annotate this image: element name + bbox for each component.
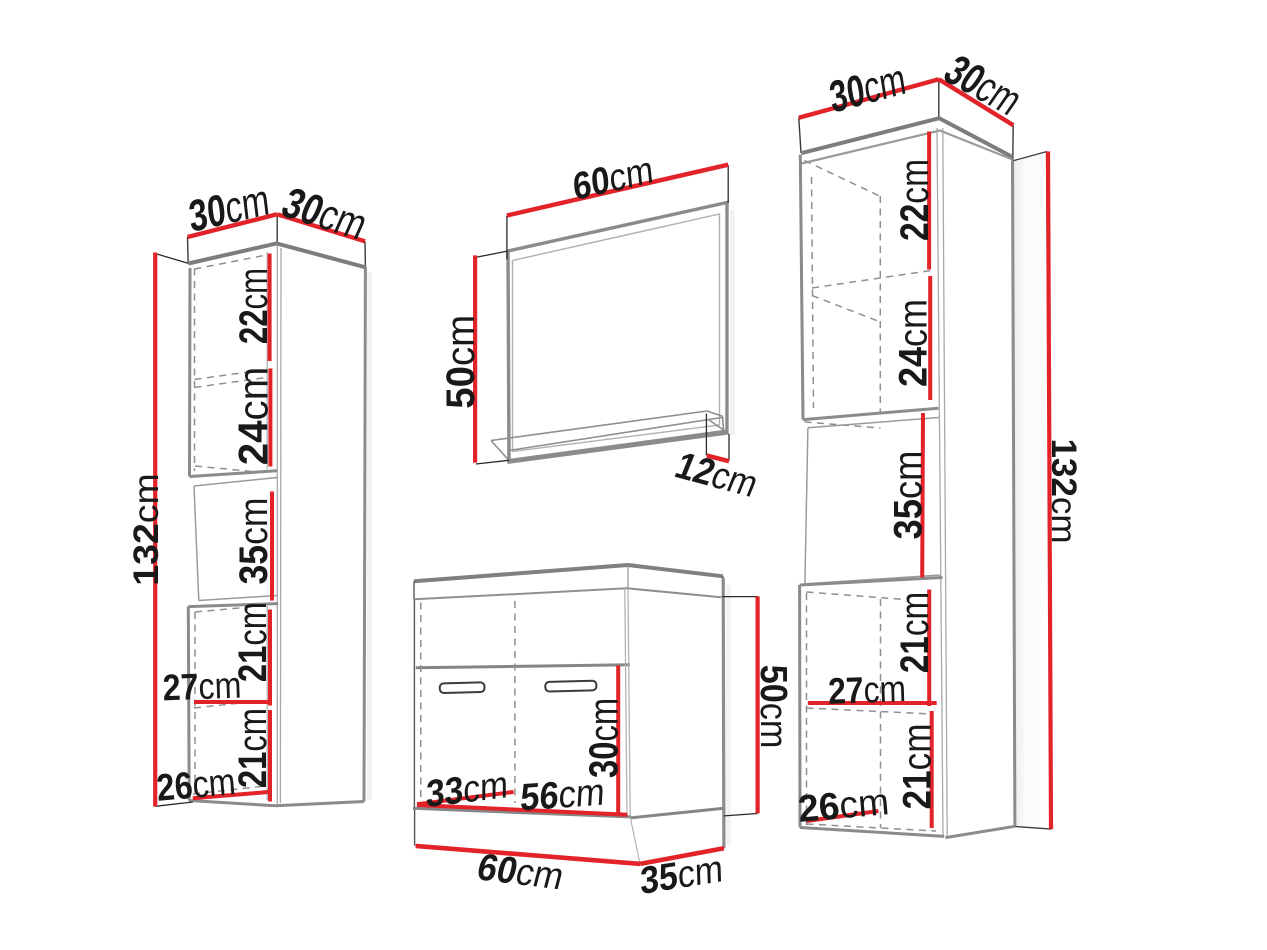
svg-text:24cm: 24cm bbox=[892, 299, 936, 387]
svg-text:21cm: 21cm bbox=[892, 592, 937, 673]
svg-text:132cm: 132cm bbox=[1044, 438, 1083, 543]
svg-text:22cm: 22cm bbox=[892, 159, 936, 241]
svg-text:132cm: 132cm bbox=[126, 473, 166, 585]
svg-text:26cm: 26cm bbox=[796, 780, 890, 830]
svg-text:24cm: 24cm bbox=[230, 367, 277, 466]
svg-text:26cm: 26cm bbox=[155, 761, 237, 810]
svg-text:21cm: 21cm bbox=[230, 708, 275, 788]
svg-text:30cm: 30cm bbox=[580, 698, 626, 778]
svg-text:50cm: 50cm bbox=[753, 665, 796, 749]
svg-text:35cm: 35cm bbox=[886, 451, 931, 540]
svg-text:27cm: 27cm bbox=[162, 666, 242, 709]
svg-text:21cm: 21cm bbox=[894, 723, 939, 809]
svg-text:50cm: 50cm bbox=[439, 315, 483, 409]
svg-text:22cm: 22cm bbox=[231, 268, 276, 344]
svg-text:35cm: 35cm bbox=[232, 497, 276, 584]
svg-text:27cm: 27cm bbox=[827, 669, 906, 712]
svg-text:56cm: 56cm bbox=[519, 770, 606, 819]
